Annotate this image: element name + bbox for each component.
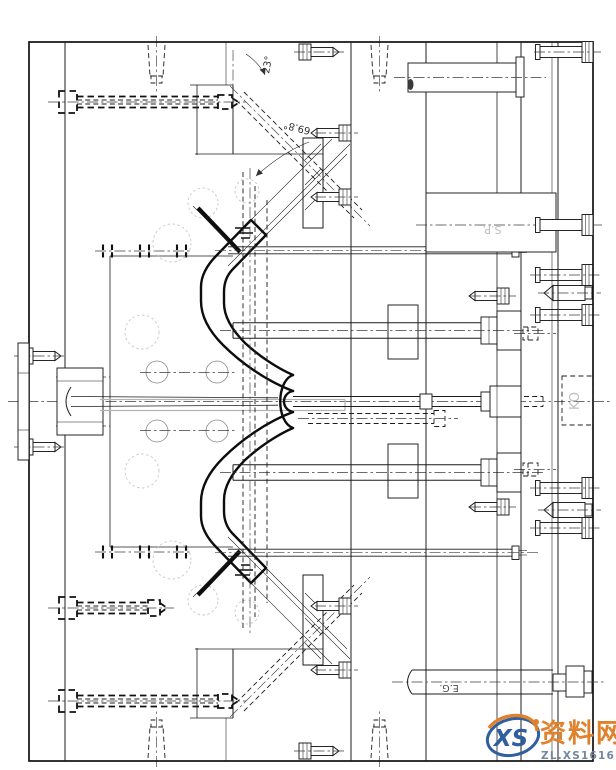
eyebolt-hole xyxy=(371,36,388,94)
ejector-guide-label: E.G. xyxy=(439,682,458,693)
support-pillar-label: S.P. xyxy=(483,223,502,236)
hidden-cap-screw xyxy=(48,91,246,113)
knockout-hole: KO xyxy=(562,376,593,425)
eyebolt-hole xyxy=(148,36,165,94)
watermark-logo-dot xyxy=(533,719,539,725)
screw-section-ticks xyxy=(95,245,192,258)
locating-ring xyxy=(18,343,29,460)
ejector-guide-pillar: E.G. xyxy=(392,666,606,697)
centerline-key xyxy=(420,394,432,409)
knockout-label: KO xyxy=(568,392,583,410)
drawing-sheet: KO S.P. E.G. xyxy=(0,0,616,770)
phantom-rod xyxy=(100,400,345,411)
watermark-site-url: ZL.XS1616.COM xyxy=(541,750,616,762)
insert-screw-head xyxy=(206,361,228,383)
watermark: XS 资料网 ZL.XS1616.COM xyxy=(483,713,616,762)
hidden-ejector-rod xyxy=(298,411,458,427)
hidden-cap-screw-short xyxy=(48,597,174,619)
guide-pin-angle-label: 23° xyxy=(261,55,275,74)
support-block xyxy=(388,305,418,359)
watermark-logo-text: XS xyxy=(492,726,528,752)
watermark-site-name: 资料网 xyxy=(540,719,616,749)
mold-assembly-drawing: KO S.P. E.G. xyxy=(0,0,616,770)
lifter-angle-label: 69.8° xyxy=(283,118,312,135)
slide-block xyxy=(303,138,323,228)
guide-pillar-top xyxy=(394,57,546,97)
support-pillar: S.P. xyxy=(416,193,602,252)
return-pin xyxy=(220,311,543,350)
insert-screw-head xyxy=(146,361,168,383)
angle-annotations: 23° 69.8° xyxy=(233,50,312,176)
